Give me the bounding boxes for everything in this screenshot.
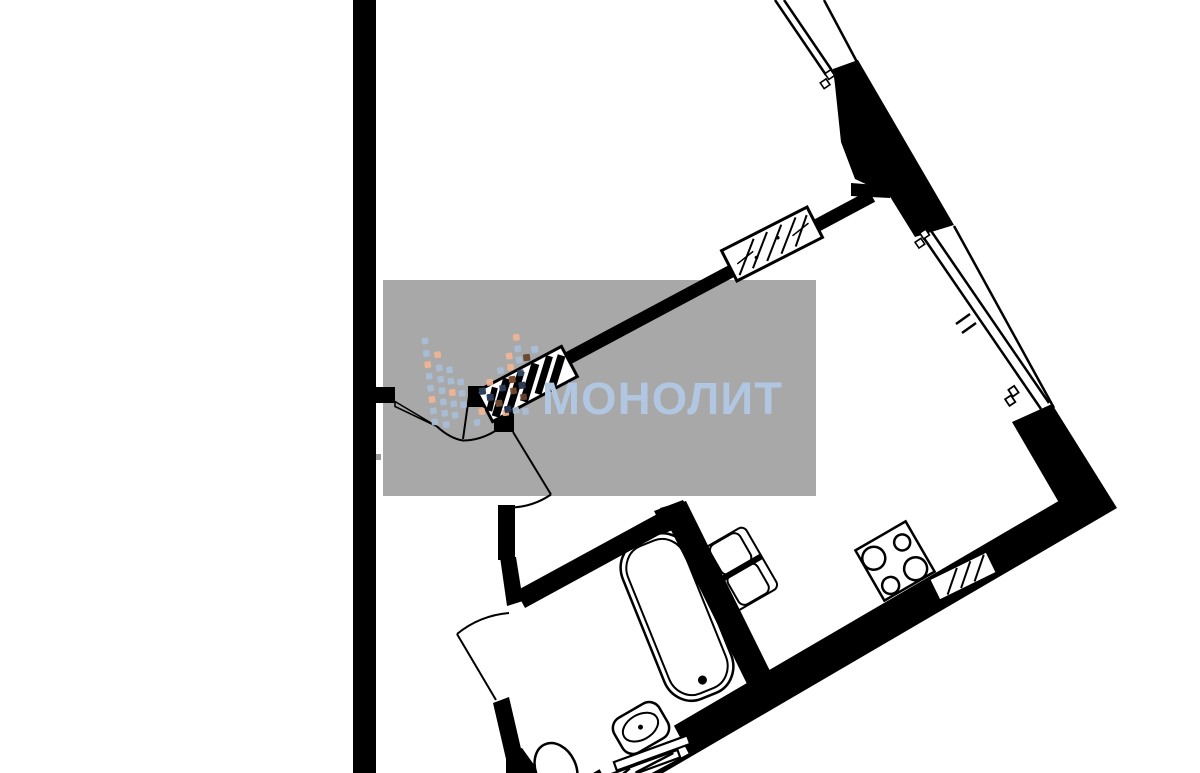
svg-text:МОНОЛИТ: МОНОЛИТ: [542, 373, 783, 424]
